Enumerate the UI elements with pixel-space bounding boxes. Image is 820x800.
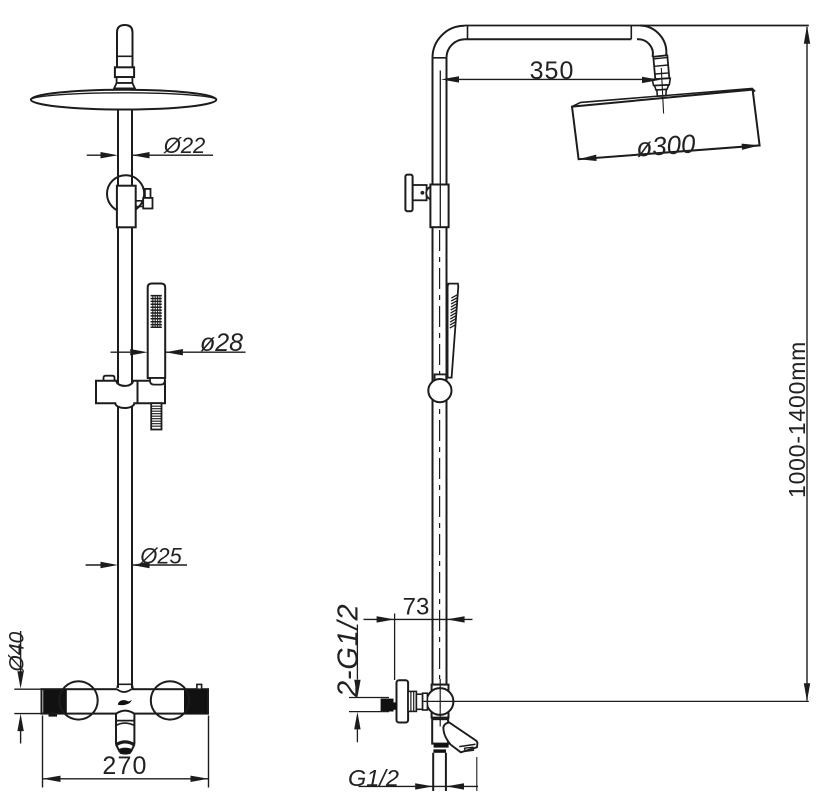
- svg-text:ø300: ø300: [635, 128, 697, 162]
- svg-text:Ø22: Ø22: [163, 133, 206, 158]
- svg-text:G1/2: G1/2: [348, 765, 399, 791]
- svg-text:ø28: ø28: [200, 329, 243, 357]
- svg-text:1000-1400mm: 1000-1400mm: [784, 341, 810, 498]
- svg-text:2-G1/2: 2-G1/2: [333, 604, 365, 698]
- svg-text:73: 73: [403, 594, 430, 621]
- svg-text:270: 270: [102, 752, 147, 780]
- svg-text:350: 350: [530, 57, 575, 85]
- svg-text:Ø40: Ø40: [6, 631, 29, 672]
- svg-text:Ø25: Ø25: [139, 544, 182, 569]
